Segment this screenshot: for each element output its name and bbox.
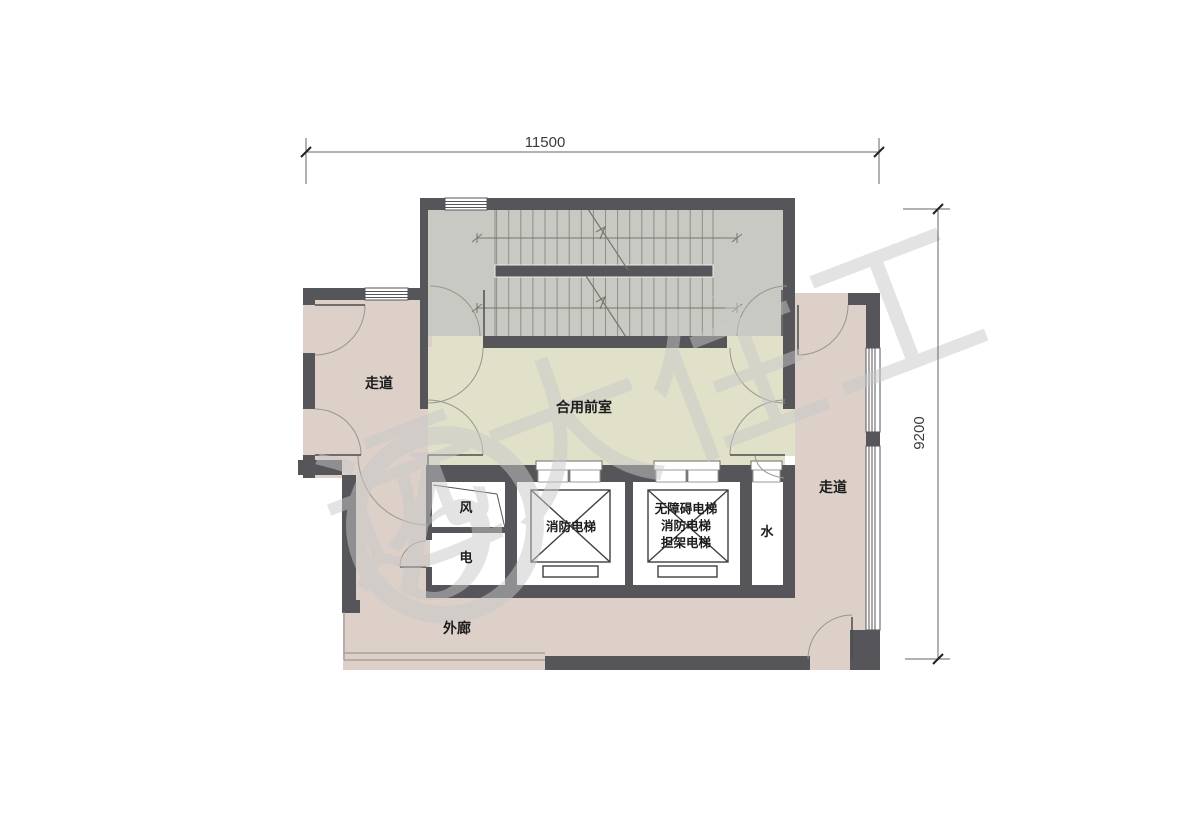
water-shaft-label: 水 (760, 524, 774, 539)
floor-plan-page: b 远大住工 走道 走道 合用前室 外廊 风 电 水 消防电梯 无障碍电梯 消防… (0, 0, 1198, 831)
air-shaft-label: 风 (459, 500, 472, 515)
corridor-right-label: 走道 (819, 479, 847, 496)
elevator-water-divider-wall (740, 482, 752, 585)
electrical-shaft-label: 电 (459, 550, 472, 565)
southeast-corner-wall (850, 630, 880, 670)
east-window-lower (866, 446, 880, 630)
outer-corridor-south-wall (545, 656, 810, 670)
dimension-height-value: 9200 (911, 416, 928, 449)
stair-mid-landing-wall (495, 265, 713, 277)
dimension-width-value: 11500 (525, 134, 566, 151)
fire-elevator-label: 消防电梯 (546, 519, 597, 534)
corridor-left-label: 走道 (365, 375, 393, 392)
dimension-top: 11500 (301, 134, 884, 184)
combo-elevator-label-1: 无障碍电梯 (654, 501, 718, 516)
corridor-left-west-wall (303, 288, 315, 305)
stair-door-opening-left (432, 336, 483, 348)
shared-lobby-label: 合用前室 (556, 399, 612, 416)
outer-corridor-label: 外廊 (443, 620, 471, 637)
corridor-left-west-wall (303, 353, 315, 409)
combo-elevator-label-2: 消防电梯 (661, 518, 712, 533)
east-exterior-wall (866, 432, 880, 446)
core-east-wall (783, 465, 795, 598)
combo-elevator-label-3: 担架电梯 (661, 535, 712, 550)
floor-plan-drawing: b 远大住工 走道 走道 合用前室 外廊 风 电 水 消防电梯 无障碍电梯 消防… (0, 0, 1198, 831)
stair-west-wall (420, 198, 428, 348)
